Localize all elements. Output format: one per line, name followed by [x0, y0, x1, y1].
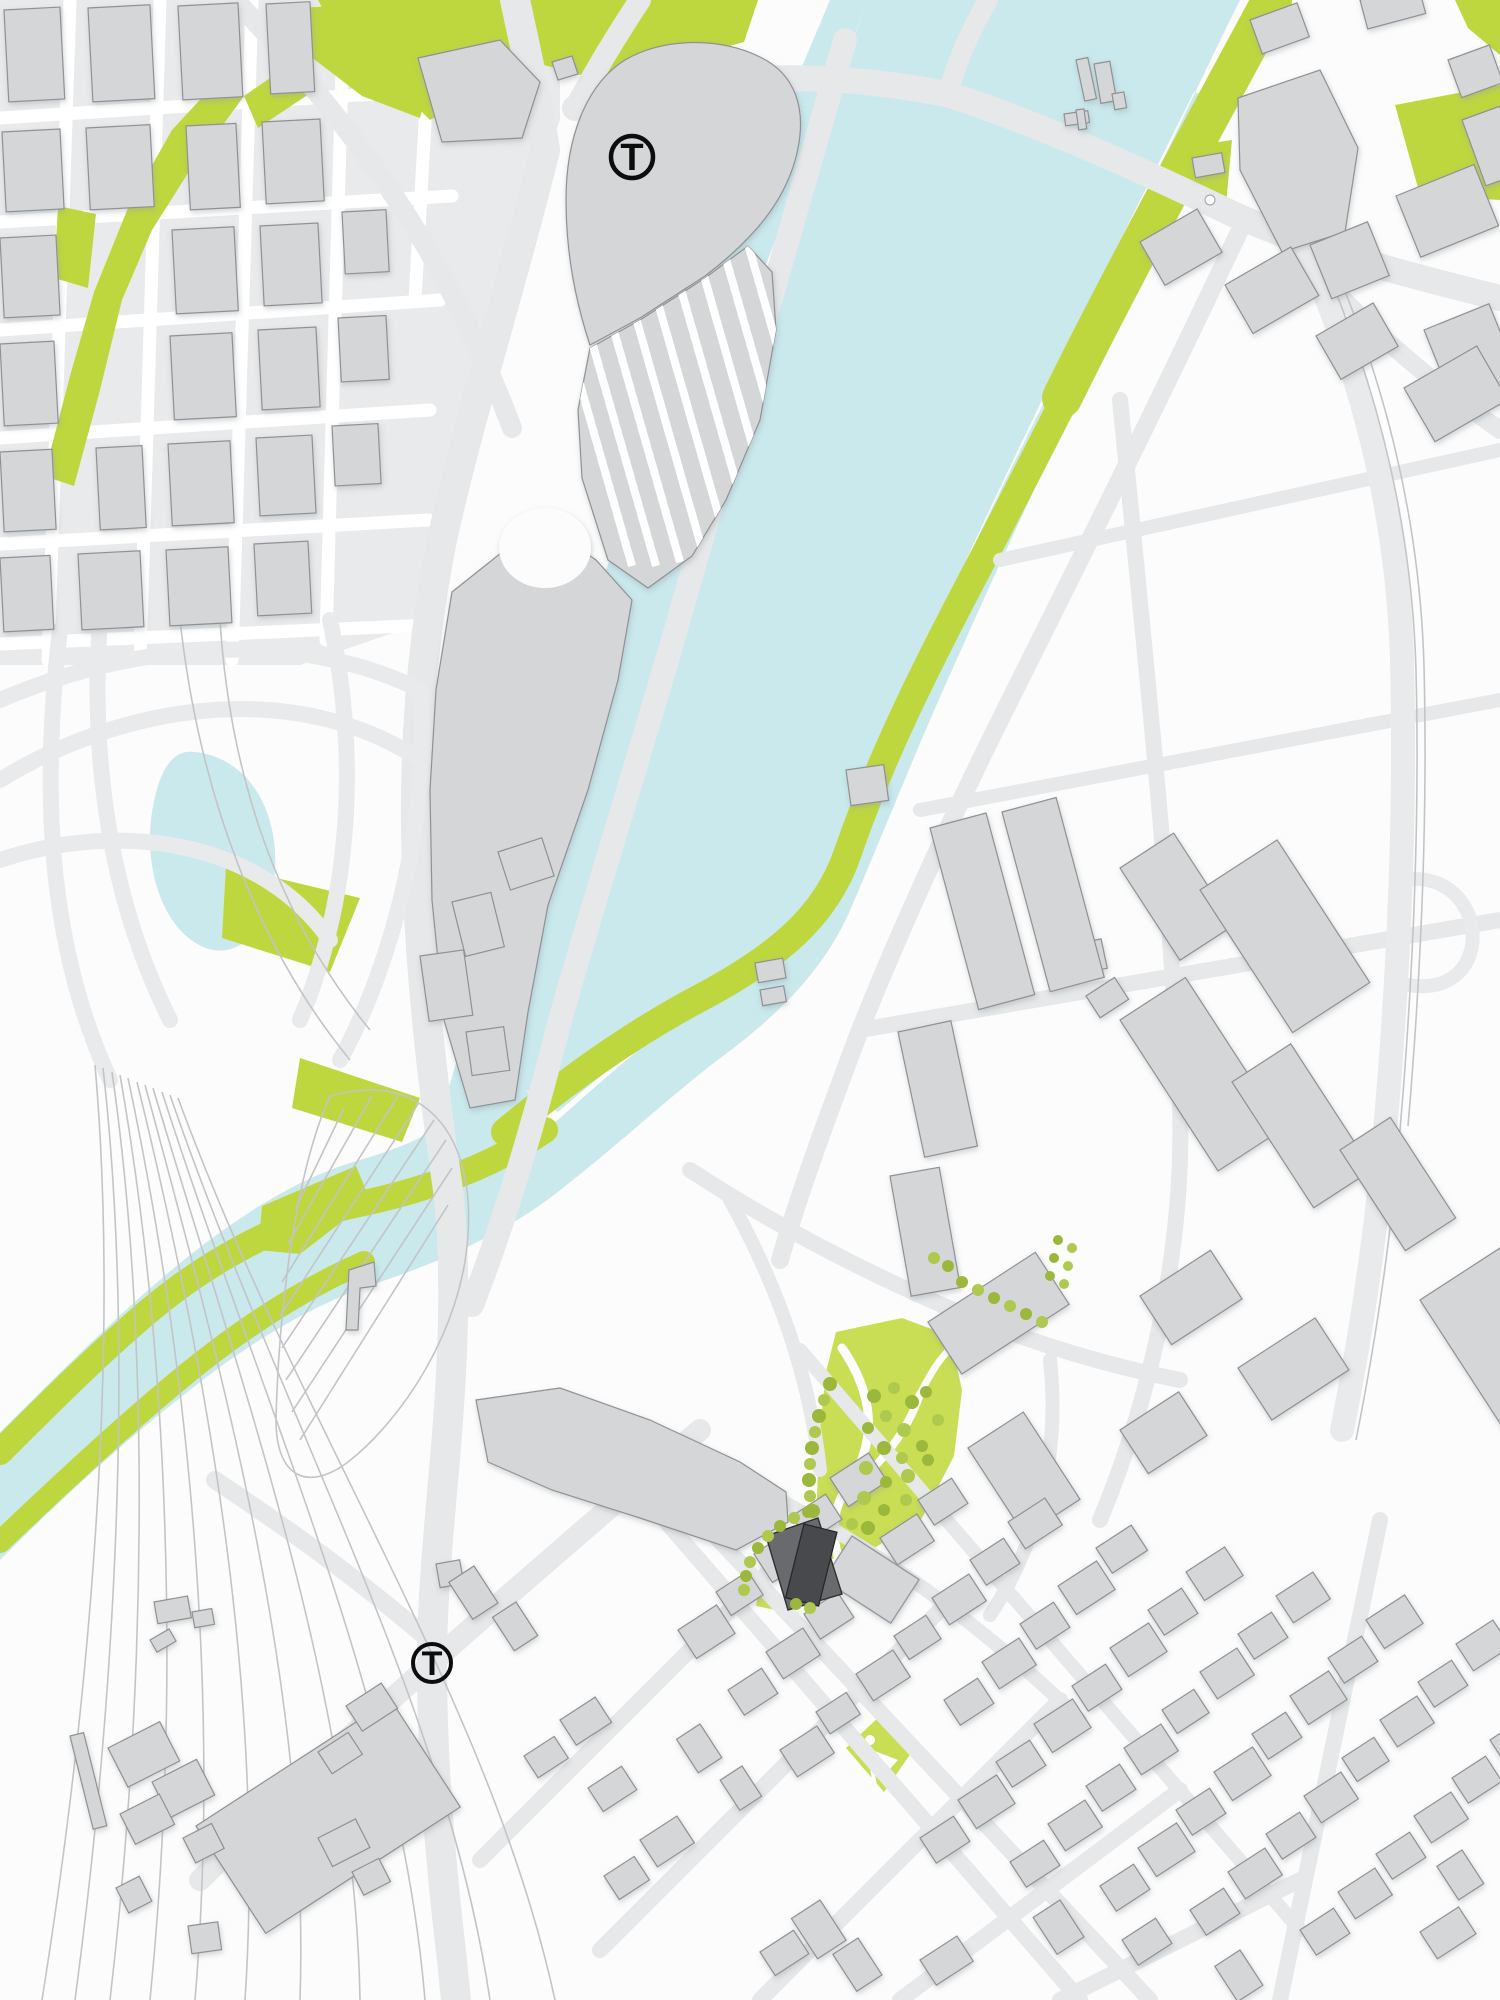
- map-canvas: T T: [0, 0, 1500, 2000]
- site-plan-map: T T: [0, 0, 1500, 2000]
- transit-marker-south-label: T: [422, 1645, 443, 1683]
- transit-marker-north-label: T: [620, 137, 643, 179]
